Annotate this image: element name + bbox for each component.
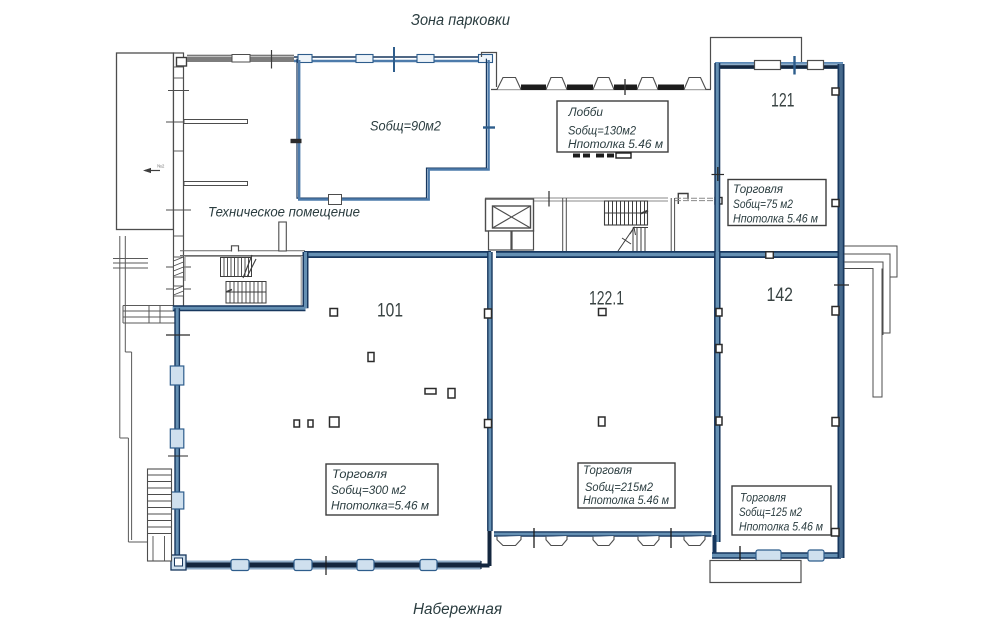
svg-text:№2: №2 (157, 164, 165, 169)
svg-text:Торговля: Торговля (332, 469, 387, 481)
svg-text:Торговля: Торговля (583, 465, 632, 477)
svg-text:Hпотолка 5.46 м: Hпотолка 5.46 м (568, 139, 663, 151)
svg-text:Sобщ=90м2: Sобщ=90м2 (370, 119, 441, 134)
svg-text:Hпотолка 5.46 м: Hпотолка 5.46 м (583, 495, 669, 507)
svg-text:Торговля: Торговля (740, 493, 786, 505)
svg-text:Набережная: Набережная (413, 601, 502, 618)
svg-text:Sобщ=125 м2: Sобщ=125 м2 (739, 507, 803, 519)
svg-text:Sобщ=130м2: Sобщ=130м2 (568, 126, 637, 138)
svg-text:Hпотолка 5.46 м: Hпотолка 5.46 м (739, 522, 823, 534)
svg-text:Торговля: Торговля (733, 184, 783, 196)
svg-text:Hпотолка 5.46 м: Hпотолка 5.46 м (733, 214, 818, 226)
svg-text:121: 121 (771, 90, 795, 112)
svg-text:Sобщ=75 м2: Sобщ=75 м2 (733, 199, 794, 211)
svg-text:Лобби: Лобби (567, 107, 603, 119)
svg-text:Hпотолка=5.46 м: Hпотолка=5.46 м (331, 501, 429, 513)
svg-text:Зона парковки: Зона парковки (411, 12, 510, 29)
svg-text:Sобщ=300 м2: Sобщ=300 м2 (331, 485, 407, 497)
svg-text:Sобщ=215м2: Sобщ=215м2 (585, 482, 654, 494)
svg-text:122.1: 122.1 (589, 288, 624, 310)
svg-text:Техническое помещение: Техническое помещение (208, 204, 360, 220)
svg-text:101: 101 (377, 300, 403, 322)
svg-text:142: 142 (767, 284, 794, 306)
